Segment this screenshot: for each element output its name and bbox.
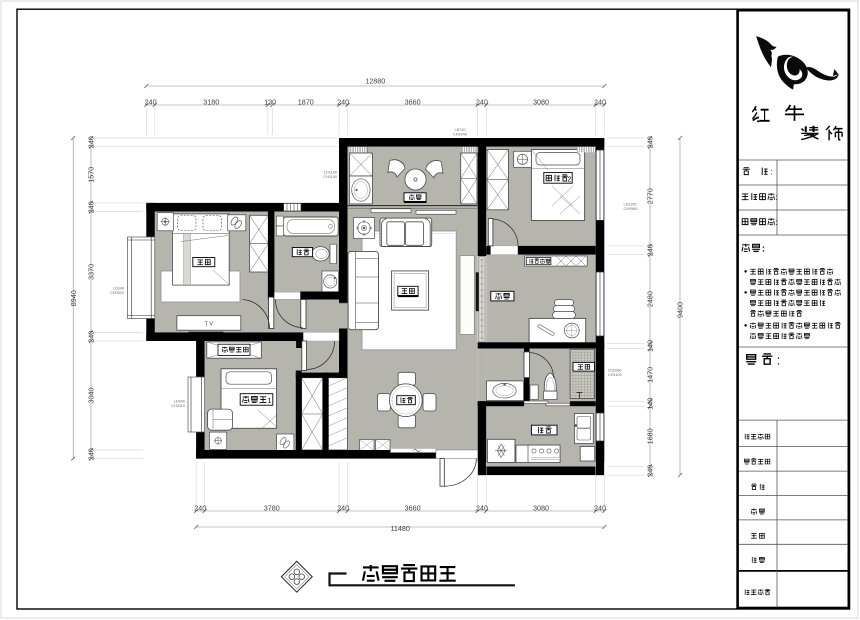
svg-text:CH0620: CH0620 (110, 291, 124, 295)
svg-text:240: 240 (337, 97, 349, 106)
svg-text::: : (762, 244, 765, 255)
svg-text::: : (777, 354, 780, 368)
svg-text:1: 1 (267, 396, 271, 405)
svg-text:1470: 1470 (646, 367, 655, 383)
svg-text:240: 240 (87, 201, 96, 213)
svg-text:240: 240 (87, 136, 96, 148)
svg-text:T V: T V (205, 322, 214, 328)
svg-text:LB740: LB740 (455, 128, 466, 132)
svg-text:140: 140 (646, 398, 655, 410)
svg-text:1870: 1870 (298, 97, 314, 106)
svg-text:240: 240 (476, 97, 488, 106)
svg-text:12880: 12880 (365, 76, 385, 85)
svg-text:3660: 3660 (405, 97, 421, 106)
svg-text:240: 240 (646, 465, 655, 477)
svg-text:240: 240 (145, 97, 157, 106)
svg-text:LD049: LD049 (113, 287, 124, 291)
svg-text:LD2060: LD2060 (608, 369, 621, 373)
svg-text:240: 240 (87, 448, 96, 460)
svg-text:240: 240 (646, 244, 655, 256)
svg-text:2770: 2770 (646, 188, 655, 204)
svg-text:240: 240 (87, 331, 96, 343)
svg-text:240: 240 (337, 503, 349, 512)
svg-text:CH1109: CH1109 (608, 373, 622, 377)
svg-text:11480: 11480 (390, 524, 409, 533)
svg-text:240: 240 (194, 503, 206, 512)
svg-text:CH2040: CH2040 (453, 132, 467, 136)
svg-text:8940: 8940 (69, 290, 78, 306)
svg-text:3080: 3080 (533, 503, 549, 512)
svg-text:2480: 2480 (646, 291, 655, 307)
svg-text:1570: 1570 (87, 167, 96, 183)
svg-text:240: 240 (476, 503, 488, 512)
svg-text:9400: 9400 (676, 302, 685, 318)
svg-text:1680: 1680 (646, 428, 655, 444)
svg-text:3080: 3080 (533, 97, 549, 106)
svg-text:3040: 3040 (87, 388, 96, 404)
svg-text:LD940: LD940 (174, 400, 185, 404)
svg-text:140: 140 (646, 340, 655, 352)
svg-text:240: 240 (646, 136, 655, 148)
svg-text:LD1150: LD1150 (624, 203, 637, 207)
svg-text:LD1150: LD1150 (324, 171, 337, 175)
svg-text:2: 2 (568, 177, 572, 184)
svg-text:3660: 3660 (405, 503, 421, 512)
svg-text::: : (775, 218, 777, 227)
svg-text:3780: 3780 (264, 503, 280, 512)
svg-text:130: 130 (264, 97, 276, 106)
svg-text::: : (775, 193, 777, 202)
svg-text:240: 240 (594, 503, 606, 512)
svg-text:3180: 3180 (203, 97, 219, 106)
svg-text::: : (770, 168, 772, 177)
svg-text:CH3110: CH3110 (171, 404, 185, 408)
svg-text:3370: 3370 (87, 264, 96, 280)
svg-text:CH1190: CH1190 (323, 175, 337, 179)
svg-text:CH0960: CH0960 (624, 207, 638, 211)
svg-text:240: 240 (594, 97, 606, 106)
